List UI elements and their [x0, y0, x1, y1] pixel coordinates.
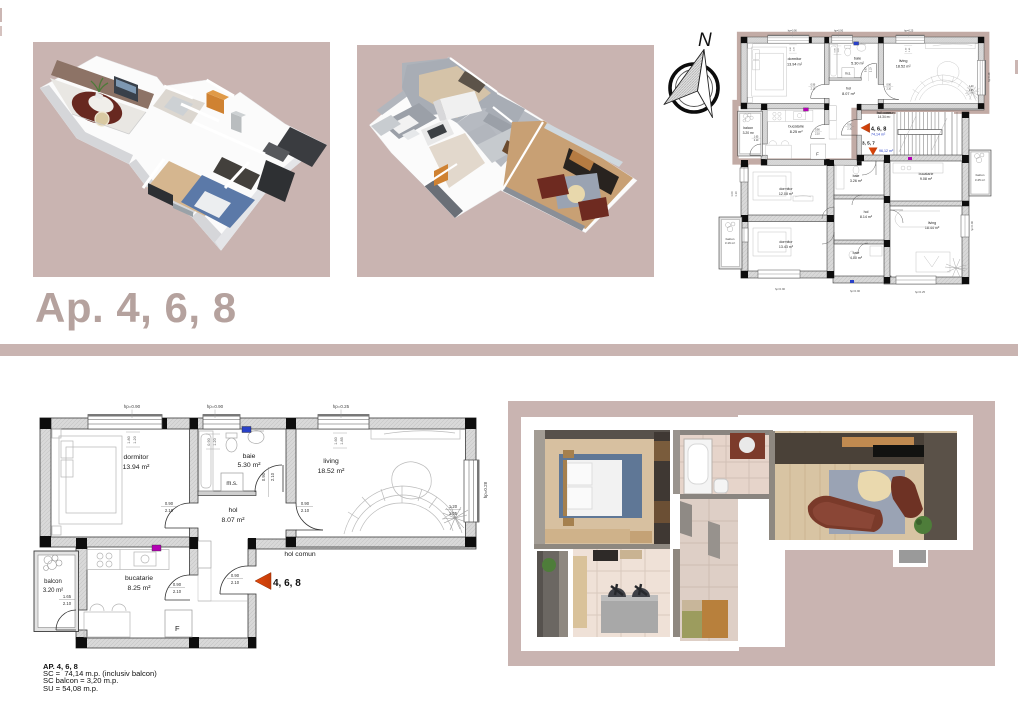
svg-text:14.34 m²: 14.34 m²: [878, 115, 891, 119]
svg-text:hp=0.28: hp=0.28: [483, 481, 488, 498]
svg-text:hp=0.90: hp=0.90: [207, 404, 224, 409]
svg-text:0.90: 0.90: [261, 472, 266, 481]
svg-text:1.65: 1.65: [63, 594, 72, 599]
svg-text:13.43 m²: 13.43 m²: [779, 245, 794, 249]
svg-text:8.14 m²: 8.14 m²: [860, 215, 873, 219]
svg-text:hp=0.90: hp=0.90: [850, 289, 861, 293]
svg-text:hp=0.90: hp=0.90: [970, 220, 974, 231]
svg-text:74,14 m²: 74,14 m²: [871, 133, 886, 137]
svg-text:1.20: 1.20: [449, 504, 458, 509]
svg-text:hp=0.90: hp=0.90: [124, 404, 141, 409]
svg-text:0.90: 0.90: [165, 501, 174, 506]
svg-text:living: living: [928, 221, 936, 225]
svg-text:1.20: 1.20: [213, 438, 217, 445]
svg-text:hol: hol: [864, 210, 869, 214]
svg-text:dormitor: dormitor: [779, 240, 793, 244]
svg-text:8.25 m²: 8.25 m²: [127, 585, 151, 592]
svg-text:3, 5, 7: 3, 5, 7: [862, 141, 875, 146]
svg-text:1.20: 1.20: [133, 436, 137, 443]
svg-text:2.10: 2.10: [173, 589, 182, 594]
svg-text:hp=0.25: hp=0.25: [333, 404, 350, 409]
svg-text:1.60: 1.60: [334, 437, 338, 444]
svg-text:dormitor: dormitor: [124, 454, 150, 461]
svg-text:2.10: 2.10: [231, 580, 240, 585]
svg-text:4, 6, 8: 4, 6, 8: [273, 578, 301, 589]
svg-text:8.07 m²: 8.07 m²: [221, 517, 245, 524]
svg-text:0.90: 0.90: [301, 501, 310, 506]
svg-text:2.10: 2.10: [63, 601, 72, 606]
svg-text:balcon: balcon: [44, 579, 62, 585]
svg-text:3.20 m²: 3.20 m²: [43, 588, 63, 594]
svg-text:5.30 m²: 5.30 m²: [237, 462, 261, 469]
svg-text:3.26 m²: 3.26 m²: [850, 179, 863, 183]
svg-text:0.90: 0.90: [207, 438, 211, 445]
svg-text:baie: baie: [853, 174, 860, 178]
svg-text:1.85: 1.85: [340, 437, 344, 444]
svg-text:0.90: 0.90: [173, 582, 182, 587]
svg-text:1.10: 1.10: [734, 191, 738, 197]
svg-text:hol: hol: [228, 507, 238, 514]
svg-text:9.08 m²: 9.08 m²: [920, 177, 933, 181]
svg-text:2.10: 2.10: [270, 472, 275, 481]
svg-text:1.05: 1.05: [449, 511, 458, 516]
svg-text:96,12 m²: 96,12 m²: [879, 149, 894, 153]
svg-text:bucatarie: bucatarie: [125, 575, 153, 582]
svg-text:hol comun: hol comun: [284, 551, 316, 558]
svg-text:2.10: 2.10: [165, 508, 174, 513]
svg-text:m.s.: m.s.: [226, 481, 238, 487]
svg-text:F: F: [175, 624, 180, 633]
svg-text:13.94 m²: 13.94 m²: [123, 464, 151, 471]
svg-text:18.44 m²: 18.44 m²: [925, 226, 940, 230]
svg-text:baie: baie: [243, 453, 256, 460]
svg-text:bucatarie: bucatarie: [919, 172, 934, 176]
svg-text:12.08 m²: 12.08 m²: [779, 192, 794, 196]
svg-text:3.45 m²: 3.45 m²: [975, 178, 985, 182]
svg-text:3.16 m²: 3.16 m²: [725, 241, 735, 245]
svg-text:hp=0.90: hp=0.90: [775, 287, 786, 291]
svg-text:4.00 m²: 4.00 m²: [850, 256, 863, 260]
svg-text:living: living: [323, 458, 339, 465]
svg-text:dormitor: dormitor: [779, 187, 793, 191]
svg-text:1.80: 1.80: [127, 436, 131, 443]
svg-text:0.90: 0.90: [231, 573, 240, 578]
svg-text:18.52 m²: 18.52 m²: [318, 468, 346, 475]
svg-text:balcon: balcon: [976, 173, 985, 177]
svg-text:hp=0.25: hp=0.25: [915, 290, 926, 294]
svg-text:2.10: 2.10: [301, 508, 310, 513]
